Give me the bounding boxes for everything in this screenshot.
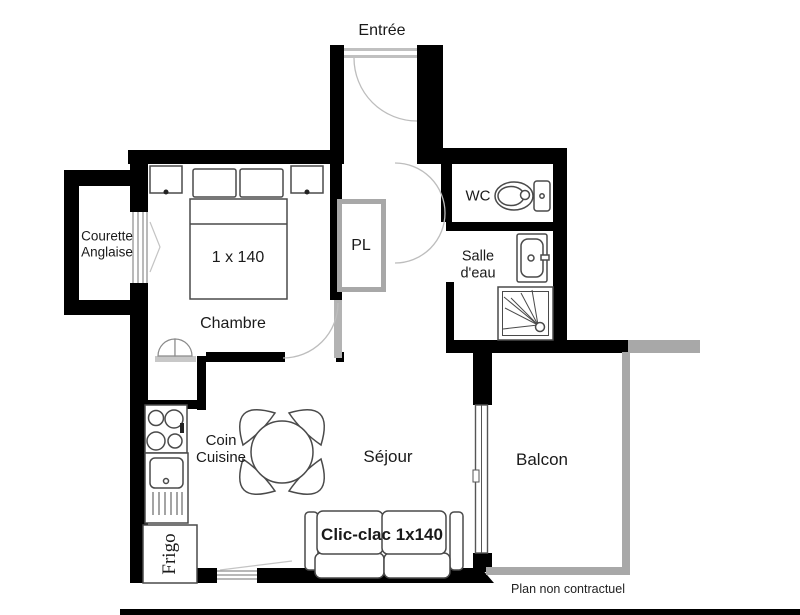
label-wc: WC [466, 187, 491, 204]
wc-door-arc [395, 163, 445, 213]
toilet-flush-icon [521, 191, 530, 200]
nightstand-right [291, 166, 323, 193]
label-courette-anglaise: CouretteAnglaise [81, 228, 133, 259]
balcony-window-handle [473, 470, 479, 482]
label-sejour: Séjour [363, 447, 412, 467]
shower-drain-icon [536, 323, 545, 332]
label-frigo: Frigo [159, 533, 181, 574]
stove-burner-icon [168, 434, 182, 448]
stove-burner-icon [149, 411, 164, 426]
sofa-armrest-right [450, 512, 463, 570]
pillow-left [193, 169, 236, 197]
label-entree: Entrée [358, 22, 405, 40]
label-disclaimer: Plan non contractuel [511, 582, 625, 596]
washbasin-tap-icon [541, 255, 549, 260]
closet-door-left-icon [158, 339, 175, 356]
toilet-button-icon [540, 194, 544, 198]
nightstand-knob [164, 190, 169, 195]
entry-door-arc [354, 58, 417, 121]
nightstand-left [150, 166, 182, 193]
label-bed-size: 1 x 140 [212, 249, 264, 267]
nightstand-knob [305, 190, 310, 195]
stove-burner-icon [147, 432, 165, 450]
label-balcon: Balcon [516, 450, 568, 470]
plan-symbols [0, 0, 800, 615]
label-salle-eau: Salled'eau [460, 248, 495, 281]
label-coin-cuisine: CoinCuisine [196, 432, 246, 467]
chambre-door-arc [283, 303, 338, 358]
sofa-seat-cushion [315, 553, 384, 578]
label-chambre: Chambre [200, 315, 266, 333]
salle-eau-door-arc [395, 213, 445, 263]
washbasin-drain-icon [528, 255, 534, 261]
stove-control-icon [180, 423, 184, 433]
kitchen-window-opening-icon [220, 561, 292, 570]
kitchen-sink-drain-icon [164, 479, 169, 484]
pillow-right [240, 169, 283, 197]
dining-table [251, 421, 313, 483]
closet-door-right-icon [175, 339, 192, 356]
label-clic-clac: Clic-clac 1x140 [321, 525, 443, 545]
courette-window-opening-icon [150, 222, 160, 272]
label-pl: PL [351, 237, 371, 255]
sofa-seat-cushion [384, 553, 450, 578]
floor-plan: Entrée CouretteAnglaise 1 x 140 Chambre … [0, 0, 800, 615]
